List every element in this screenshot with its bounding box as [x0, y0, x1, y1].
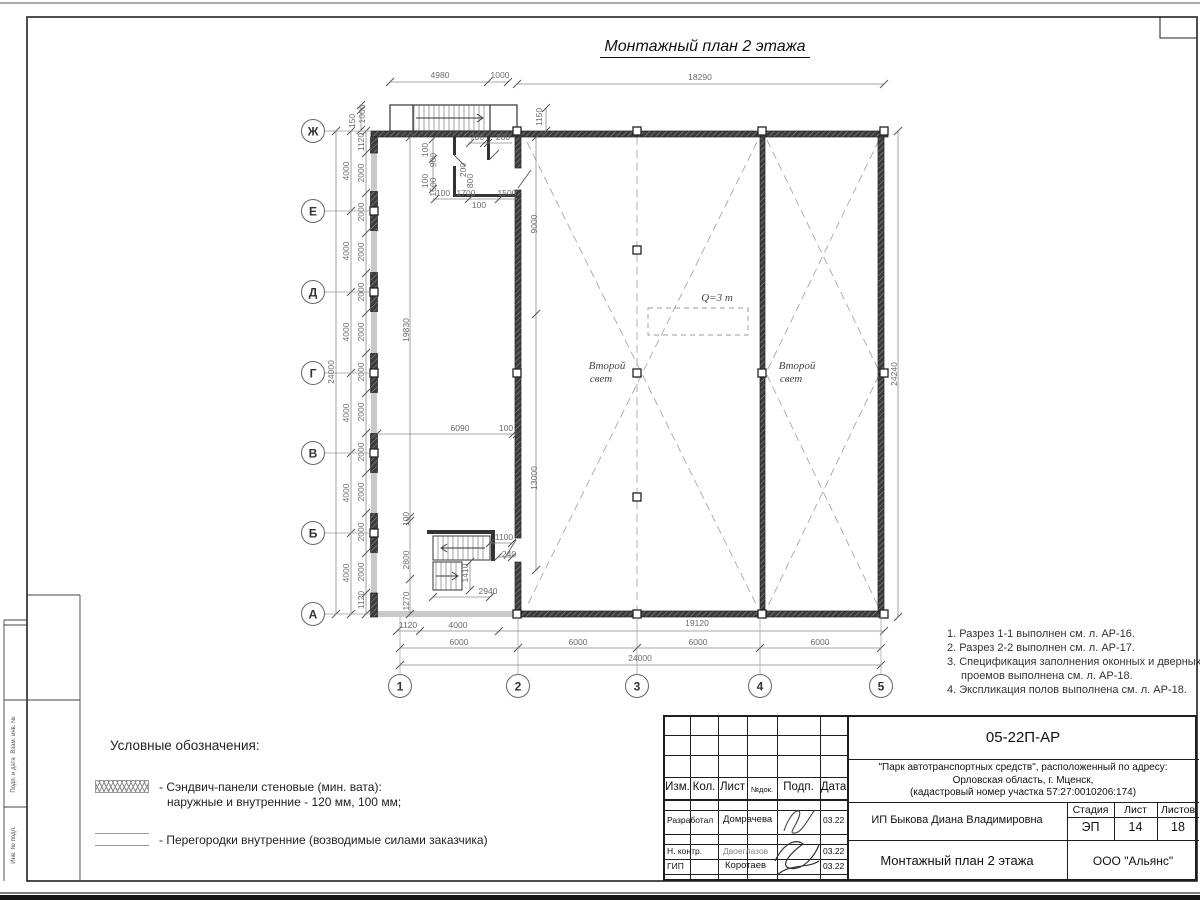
- tb-name-developer: Домрачева: [723, 814, 772, 825]
- tb-date-gip: 03.22: [823, 861, 844, 871]
- dim-label: 24240: [889, 362, 899, 386]
- dim-label: 2000: [356, 482, 366, 501]
- notes-block: 1. Разрез 1-1 выполнен см. л. АР-16.2. Р…: [947, 627, 1200, 697]
- column: [513, 610, 521, 618]
- dim-label: 2000: [356, 362, 366, 381]
- grid-letter: Е: [309, 205, 317, 219]
- grid-letter: Б: [309, 527, 318, 541]
- tb-project-line1: "Парк автотранспортных средств", располо…: [851, 762, 1195, 775]
- dim-label: 2000: [356, 402, 366, 421]
- drawing-title-text: Монтажный план 2 этажа: [600, 38, 809, 58]
- legend-item-partitions: - Перегородки внутренние (возводимые сил…: [159, 833, 488, 848]
- signature-gip: [773, 835, 823, 881]
- tb-role-developer: Разработал: [667, 815, 713, 825]
- dim-label: 1120: [356, 133, 366, 152]
- plan-text-labels: Q=3 тВторойсветВторойсвет: [589, 292, 816, 385]
- grid-letter: Ж: [307, 125, 319, 139]
- dim-label: 2000: [356, 242, 366, 261]
- note-item: 2. Разрез 2-2 выполнен см. л. АР-17.: [947, 641, 1200, 655]
- dim-label: 6000: [811, 637, 830, 647]
- plan-label: свет: [590, 373, 612, 385]
- column: [758, 610, 766, 618]
- dim-label: 240: [502, 549, 516, 559]
- dim-label: 4000: [341, 322, 351, 341]
- dim-label: 2000: [356, 163, 366, 182]
- grid-letter: А: [309, 608, 318, 622]
- dim-label: 6090: [451, 423, 470, 433]
- grid-letter: Д: [309, 286, 318, 300]
- dim-label: 2000: [356, 442, 366, 461]
- tb-col-list: Лист: [718, 781, 747, 793]
- dim-label: 200: [496, 132, 510, 142]
- grid-letter: Г: [310, 367, 317, 381]
- column: [633, 610, 641, 618]
- tb-project-line2: Орловская область, г. Мценск,: [851, 775, 1195, 788]
- dim-label: 100: [472, 200, 486, 210]
- dim-label: 100: [436, 188, 450, 198]
- tb-doc-number: 05-22П-АР: [847, 729, 1199, 746]
- tb-col-podp: Подп.: [777, 781, 820, 793]
- dim-label: 13000: [529, 466, 539, 490]
- column: [370, 529, 378, 537]
- dim-label: 2000: [356, 282, 366, 301]
- note-item: 3. Спецификация заполнения оконных и две…: [947, 655, 1200, 683]
- tb-sheets-value: 18: [1157, 820, 1199, 834]
- margin-stamp-label: Взам. инв. №: [10, 716, 17, 753]
- margin-labels: Взам. инв. №Подп. и датаИнв. № подл.: [10, 716, 17, 863]
- drawing-title: Монтажный план 2 этажа: [540, 38, 870, 56]
- legend-item1-line1: - Сэндвич-панели стеновые (мин. вата):: [159, 780, 401, 795]
- dim-label: 1000: [357, 104, 367, 123]
- column: [370, 369, 378, 377]
- tb-project-line3: (кадастровый номер участка 57:27:0010206…: [851, 787, 1195, 800]
- dim-label: 9000: [529, 214, 539, 233]
- tb-drawing-name: Монтажный план 2 этажа: [847, 853, 1067, 868]
- column: [370, 449, 378, 457]
- dim-label: 1410: [460, 563, 470, 582]
- dim-label: 800: [465, 174, 475, 188]
- dim-label: 2940: [479, 586, 498, 596]
- column: [880, 127, 888, 135]
- grid-letter: В: [309, 447, 318, 461]
- dim-label: 4000: [341, 483, 351, 502]
- plan-label: Второй: [589, 360, 626, 372]
- dim-label: 6000: [569, 637, 588, 647]
- column: [370, 288, 378, 296]
- column: [513, 127, 521, 135]
- dim-label: 4000: [449, 620, 468, 630]
- column: [880, 369, 888, 377]
- column: [633, 246, 641, 254]
- dim-label: 24000: [326, 360, 336, 384]
- dim-label: 1270: [401, 591, 411, 610]
- dim-label: 1700: [457, 188, 476, 198]
- dim-label: 100: [401, 512, 411, 526]
- grid-number: 3: [634, 680, 641, 694]
- tb-company: ООО "Альянс": [1067, 854, 1199, 868]
- dim-label: 1150: [534, 108, 544, 127]
- tb-sheet-label: Лист: [1114, 804, 1157, 816]
- dim-label: 18290: [688, 72, 712, 82]
- dim-label: 4000: [341, 241, 351, 260]
- dim-label: 150: [347, 114, 357, 128]
- bracing-dashed: [527, 137, 879, 611]
- tb-stage-label: Стадия: [1067, 804, 1114, 816]
- column: [880, 610, 888, 618]
- dim-label: 24000: [628, 653, 652, 663]
- margin-stamp-label: Инв. № подл.: [10, 826, 17, 864]
- dim-label: 2800: [401, 550, 411, 569]
- grid-number: 1: [397, 680, 404, 694]
- dim-label: 19830: [401, 318, 411, 342]
- tb-col-izm: Изм.: [665, 781, 690, 793]
- tb-name-gip: Коротаев: [725, 860, 766, 871]
- dim-label: 1120: [356, 591, 366, 610]
- dim-label: 1500: [498, 188, 517, 198]
- dim-label: 1000: [491, 70, 510, 80]
- plan-label: Q=3 т: [701, 292, 733, 304]
- dim-label: 6000: [689, 637, 708, 647]
- grid-number: 5: [878, 680, 885, 694]
- dim-label: 1100: [495, 532, 514, 542]
- tb-sheet-value: 14: [1114, 820, 1157, 834]
- drawing-sheet: { "sheet": { "title": "Монтажный план 2 …: [0, 0, 1200, 900]
- dim-label: 2000: [356, 562, 366, 581]
- tb-client: ИП Быкова Диана Владимировна: [847, 814, 1067, 826]
- dim-label: 4980: [431, 70, 450, 80]
- tb-date-ncontrol: 03.22: [823, 846, 844, 856]
- legend-item-sandwich-panels: - Сэндвич-панели стеновые (мин. вата): н…: [159, 780, 401, 810]
- legend: Условные обозначения: - Сэндвич-панели с…: [95, 738, 515, 753]
- dim-label: 4000: [341, 403, 351, 422]
- tb-sheets-label: Листов: [1157, 804, 1199, 816]
- dimension-chains: [332, 78, 902, 669]
- legend-item1-line2: наружные и внутренние - 120 мм, 100 мм;: [159, 795, 401, 810]
- dim-label: 700: [470, 132, 484, 142]
- tb-col-ndok: №док.: [747, 785, 777, 794]
- legend-title: Условные обозначения:: [110, 738, 515, 753]
- column: [633, 493, 641, 501]
- dim-label: 4000: [341, 563, 351, 582]
- grid-number: 2: [515, 680, 522, 694]
- tb-name-ncontrol: Двоеглазов: [723, 846, 768, 856]
- plan-label: свет: [780, 373, 802, 385]
- legend-swatch-sandwich-panel: [95, 780, 149, 793]
- dim-label: 100: [499, 423, 513, 433]
- plan-label: Второй: [779, 360, 816, 372]
- dim-label: 6000: [450, 637, 469, 647]
- title-block: Изм. Кол. Лист №док. Подп. Дата Разработ…: [663, 715, 1197, 881]
- dim-label: 4000: [341, 161, 351, 180]
- dim-label: 2000: [356, 522, 366, 541]
- column: [633, 369, 641, 377]
- note-item: 1. Разрез 1-1 выполнен см. л. АР-16.: [947, 627, 1200, 641]
- grid-number: 4: [757, 680, 764, 694]
- tb-role-gip: ГИП: [667, 861, 684, 871]
- column: [513, 369, 521, 377]
- legend-swatch-partition: [95, 833, 149, 846]
- dim-label: 19120: [685, 618, 709, 628]
- annex-light-walls: [371, 137, 517, 617]
- stair-external-arrow: [416, 114, 483, 122]
- tb-date-developer: 03.22: [823, 815, 844, 825]
- column: [758, 127, 766, 135]
- dim-label: 2000: [356, 322, 366, 341]
- column: [758, 369, 766, 377]
- tb-col-data: Дата: [820, 781, 847, 793]
- dim-label: 2000: [356, 202, 366, 221]
- note-item: 4. Экспликация полов выполнена см. л. АР…: [947, 683, 1200, 697]
- dim-label: 1120: [399, 620, 418, 630]
- tb-col-kol: Кол.: [690, 781, 718, 793]
- tb-project: "Парк автотранспортных средств", располо…: [851, 762, 1195, 800]
- column: [370, 207, 378, 215]
- tb-stage-value: ЭП: [1067, 820, 1114, 834]
- margin-stamp-label: Подп. и дата: [11, 757, 17, 793]
- column: [633, 127, 641, 135]
- dim-label: 900: [428, 153, 438, 167]
- tb-role-ncontrol: Н. контр.: [667, 846, 702, 856]
